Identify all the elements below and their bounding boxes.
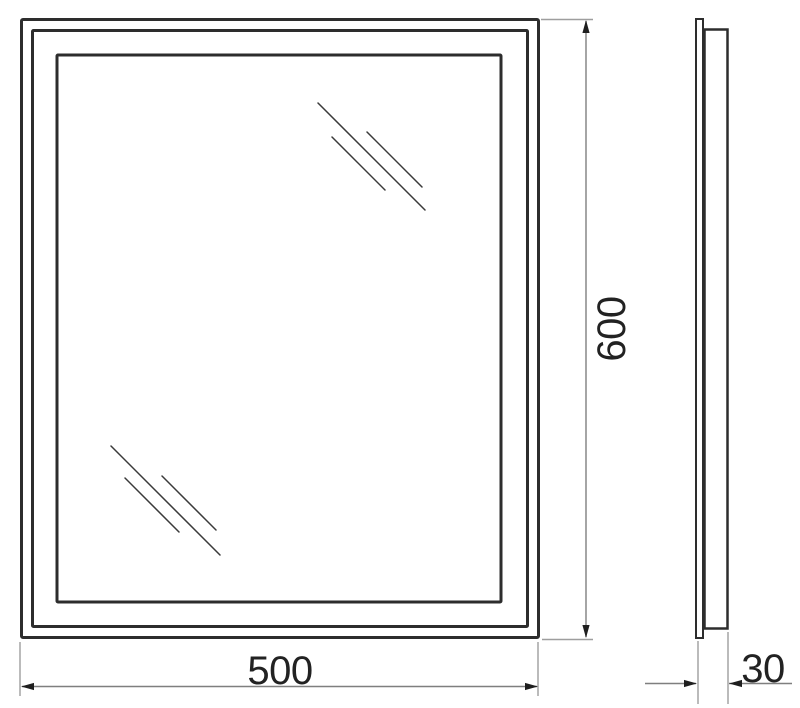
glass-hatch-line-long xyxy=(111,446,220,555)
arrow-down-icon xyxy=(582,625,589,638)
depth-dimension-label: 30 xyxy=(741,647,785,691)
arrow-right-icon xyxy=(684,680,697,687)
side-view xyxy=(696,19,728,638)
glass-reflection-hatch-top-right xyxy=(318,103,425,210)
front-view-middle-frame xyxy=(33,31,528,627)
arrow-left-icon xyxy=(729,680,742,687)
glass-hatch-line-short xyxy=(162,476,216,530)
front-view xyxy=(22,20,539,638)
glass-reflection-hatch-bottom-left xyxy=(111,446,220,555)
height-dimension-label: 600 xyxy=(590,296,634,361)
front-view-inner-frame xyxy=(57,55,501,602)
mirror-dimension-drawing: 500 600 30 xyxy=(0,0,800,708)
side-view-mirror-pane xyxy=(696,19,703,638)
technical-drawing-canvas: 500 600 30 xyxy=(0,0,800,708)
glass-hatch-line-short xyxy=(332,137,385,190)
front-view-outer-frame xyxy=(22,20,539,638)
arrow-left-icon xyxy=(21,683,34,690)
arrow-right-icon xyxy=(525,683,538,690)
arrow-up-icon xyxy=(582,20,589,33)
dimension-lines xyxy=(22,21,792,687)
glass-hatch-line-long xyxy=(318,103,425,210)
side-view-back-panel xyxy=(705,30,728,629)
width-dimension-label: 500 xyxy=(247,649,312,693)
